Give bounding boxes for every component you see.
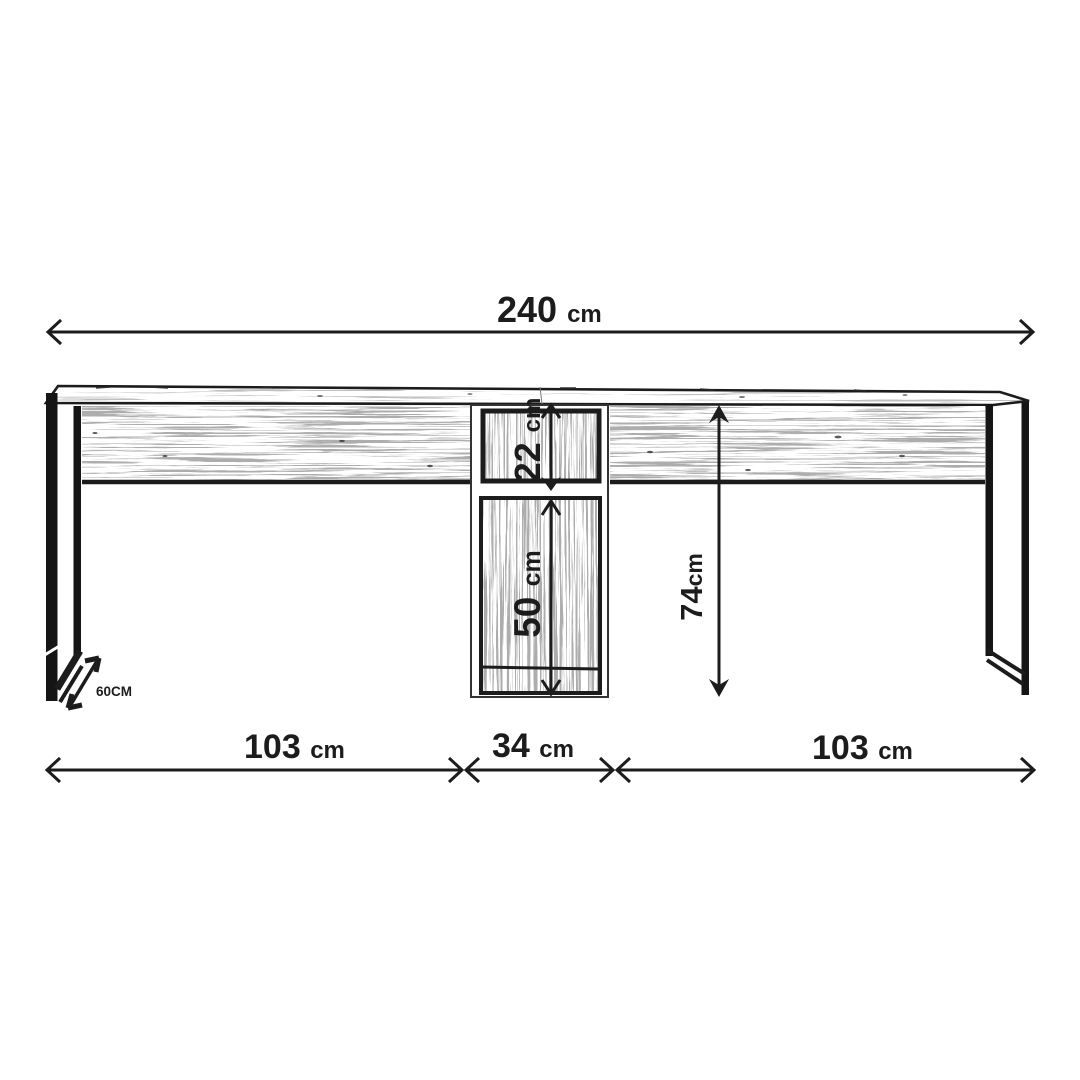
svg-text:60CM: 60CM — [96, 684, 132, 699]
